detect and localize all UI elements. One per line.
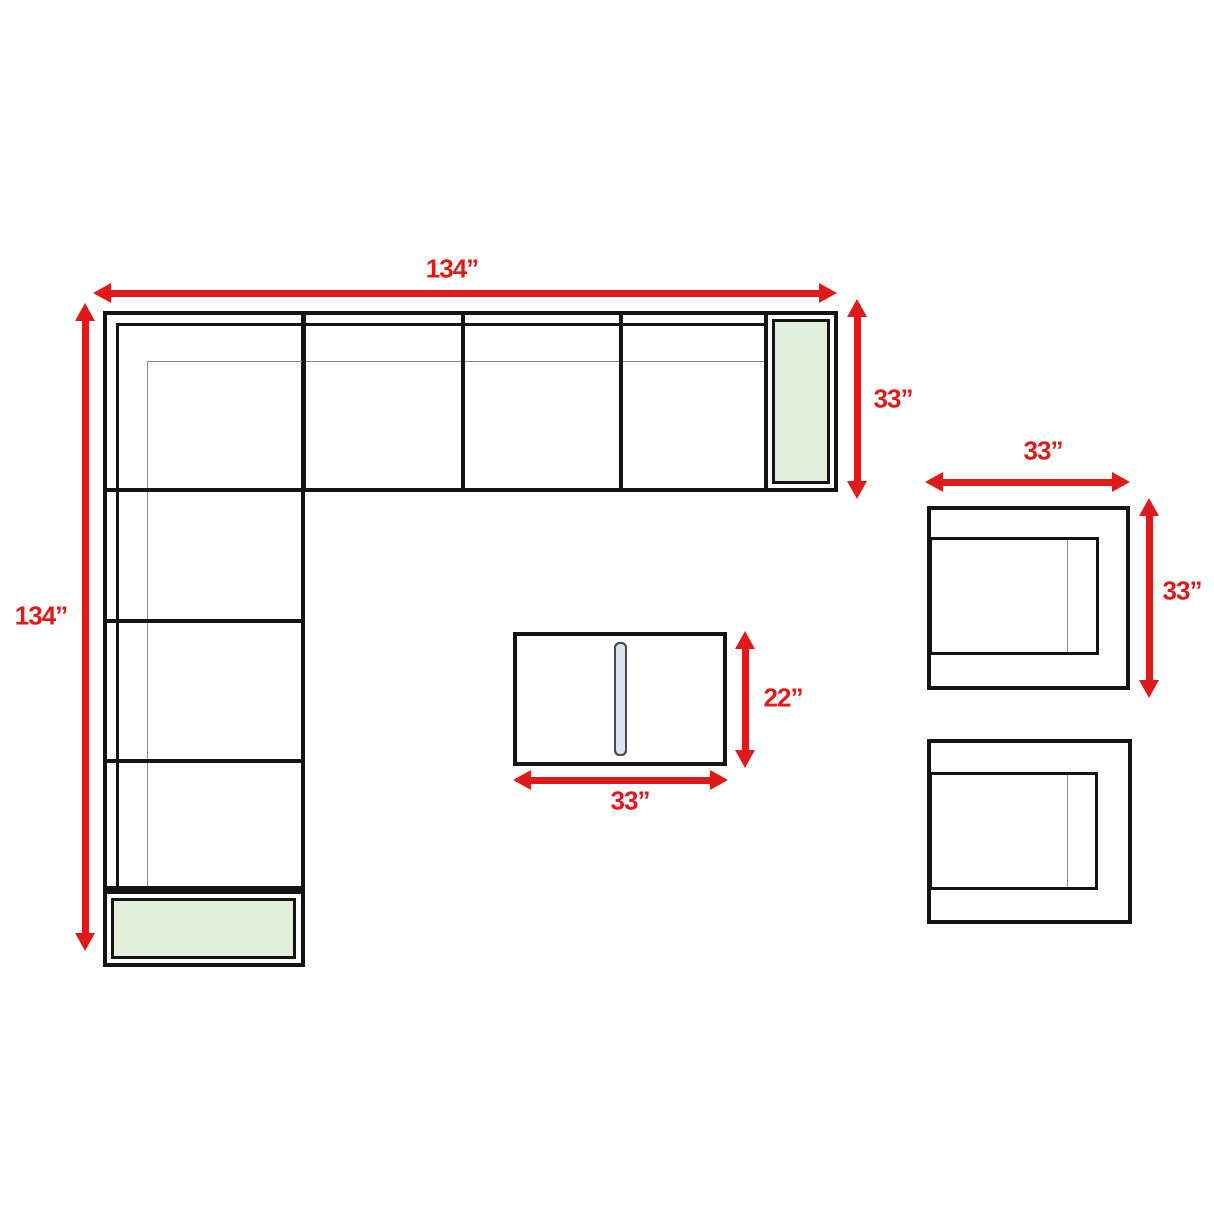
arrow-shaft [940,479,1115,486]
arrow-shaft [1146,513,1153,683]
dimension-arrow-sofa-width [93,282,837,304]
furniture-dimension-diagram: 134” 134” 33” 33” 33” 22” 33” [0,0,1214,1214]
armchair-1-seat [929,537,1099,655]
sofa-left-column-outline [103,311,305,967]
sofa-backrest-front-line-vertical [147,361,148,888]
arrow-shaft [854,314,861,484]
sofa-armrest-right-pad [772,319,830,484]
arrowhead-north-icon [735,631,755,649]
armchair-2-seat [929,772,1098,890]
arrow-shaft [742,646,749,753]
dimension-arrow-sofa-end-depth [846,299,868,499]
armchair-1-backrest-line [1067,540,1068,652]
armchair-2-backrest-line [1067,775,1068,887]
dimension-arrow-armchair-depth [1138,498,1160,698]
dimension-arrow-table-depth [734,631,756,768]
arrowhead-east-icon [710,770,728,790]
dimension-label-armchair-depth: 33” [1163,576,1202,607]
dimension-label-table-depth: 22” [764,683,803,714]
dimension-arrow-sofa-depth [74,303,96,951]
sofa-backrest-front-line-horizontal [147,361,766,362]
arrowhead-west-icon [925,472,943,492]
arrowhead-south-icon [75,933,95,951]
arrowhead-south-icon [847,481,867,499]
sofa-backrest-frame-line-vertical [116,323,119,890]
arrowhead-east-icon [1112,472,1130,492]
dimension-label-sofa-end-depth: 33” [874,384,913,415]
arrowhead-east-icon [819,283,837,303]
seat-divider [461,311,465,492]
dimension-label-sofa-width: 134” [426,254,478,285]
arrowhead-south-icon [735,750,755,768]
arrowhead-north-icon [75,303,95,321]
dimension-arrow-armchair-width [925,471,1130,493]
sofa-backrest-frame-line-horizontal [116,323,766,326]
seat-divider [619,311,623,492]
table-slat [614,642,627,756]
arrowhead-west-icon [93,283,111,303]
dimension-label-table-width: 33” [611,786,650,817]
arrowhead-north-icon [1139,498,1159,516]
dimension-label-sofa-depth: 134” [15,601,67,632]
seat-divider [302,311,306,492]
arrow-shaft [528,777,713,784]
sofa-armrest-bottom-pad [111,898,296,959]
seat-divider [103,619,305,623]
coffee-table-slats [517,636,723,762]
arrowhead-west-icon [513,770,531,790]
arrow-shaft [82,318,89,936]
coffee-table [513,632,727,766]
seat-divider [103,759,305,763]
arrowhead-south-icon [1139,680,1159,698]
dimension-label-armchair-width: 33” [1024,436,1063,467]
seat-divider [103,488,305,492]
arrowhead-north-icon [847,299,867,317]
arrow-shaft [108,290,822,297]
